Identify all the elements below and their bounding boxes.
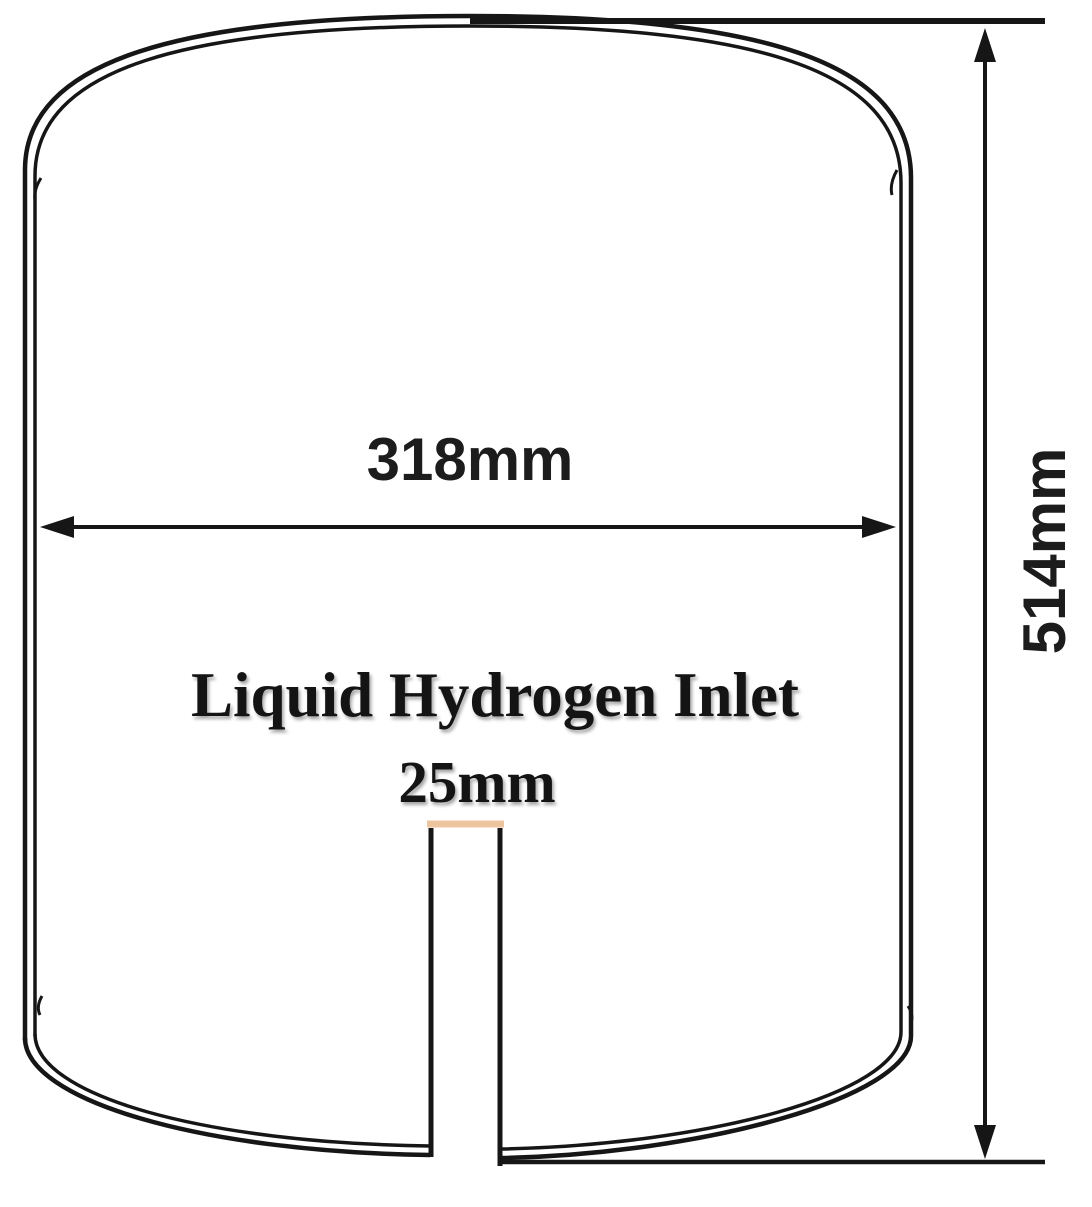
tank-bottom-inner-right (502, 1032, 901, 1149)
inlet-dimension-label: 25mm (327, 751, 627, 813)
tank-drawing (0, 0, 1092, 1207)
inlet-label: Liquid Hydrogen Inlet (145, 662, 845, 728)
tank-inner-wall (35, 26, 901, 1036)
height-dimension-label: 514mm (1013, 391, 1077, 711)
tangent-tick-top-right (891, 170, 897, 195)
tank-bottom-outer-right (502, 1036, 911, 1158)
tank-bottom-inner-left (35, 1034, 430, 1146)
width-dimension-arrow-left (40, 516, 74, 538)
height-dimension-arrow-top (974, 28, 996, 62)
diagram-canvas: 318mm 514mm Liquid Hydrogen Inlet 25mm (0, 0, 1092, 1207)
height-dimension-arrow-bottom (974, 1125, 996, 1159)
width-dimension-label: 318mm (320, 430, 620, 490)
tank-bottom-outer-left (25, 1038, 430, 1155)
tangent-tick-bottom-left (38, 996, 42, 1015)
width-dimension-arrow-right (862, 516, 896, 538)
